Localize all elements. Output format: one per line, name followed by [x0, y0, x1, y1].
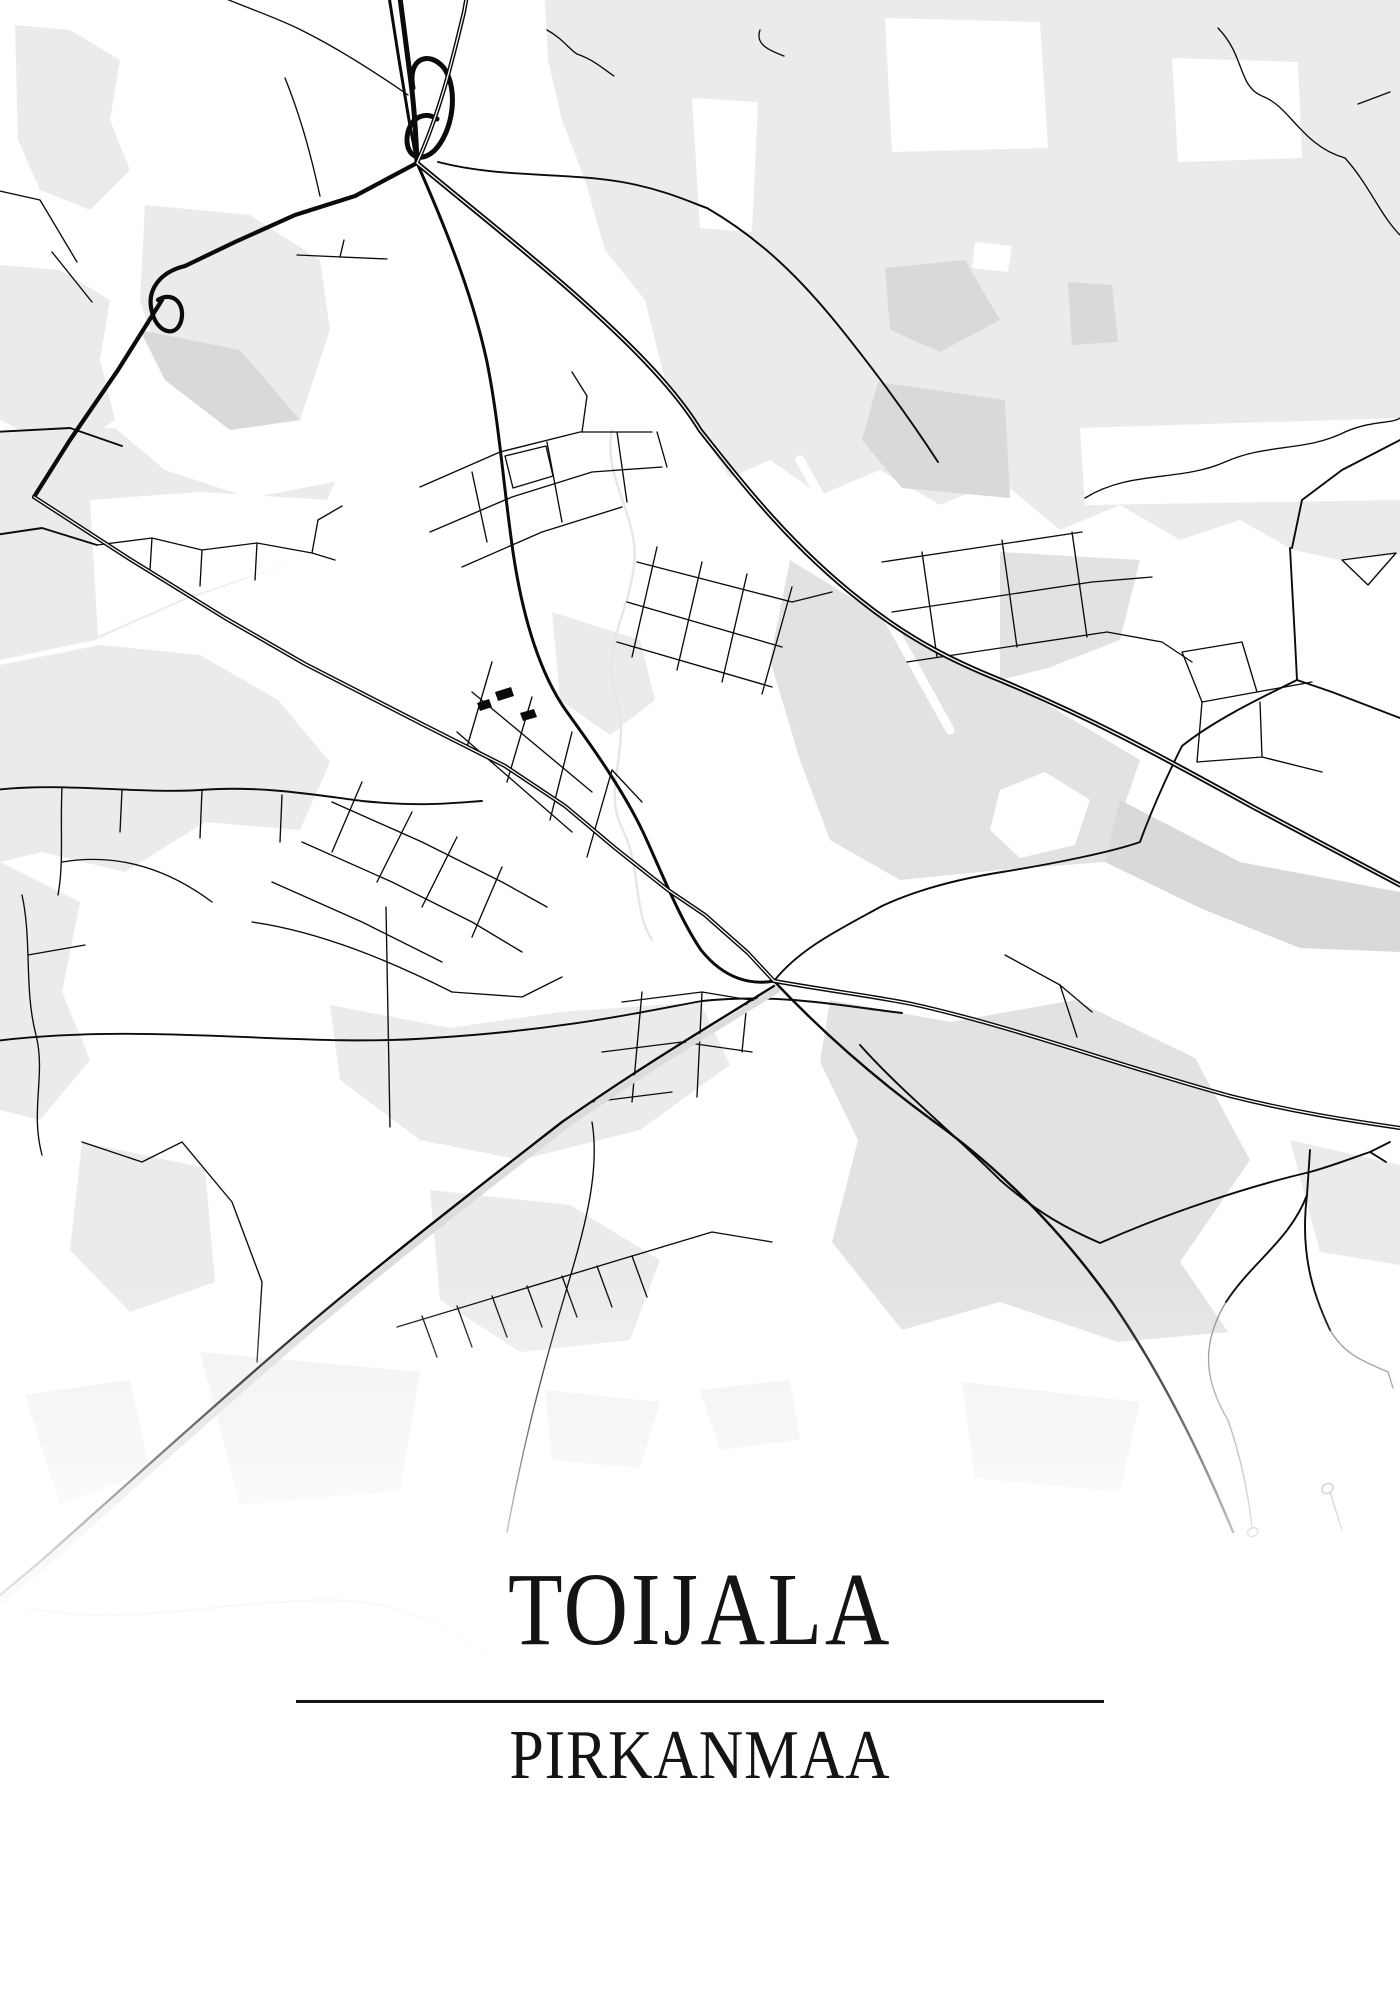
- map-poster: TOIJALA PIRKANMAA: [0, 0, 1400, 2000]
- building-footprints: [477, 687, 537, 721]
- city-title: TOIJALA: [98, 1556, 1302, 1664]
- title-divider-line: [296, 1700, 1104, 1703]
- landuse-layer-mid: [770, 552, 1250, 1342]
- title-block: TOIJALA PIRKANMAA: [0, 1556, 1400, 1793]
- region-subtitle: PIRKANMAA: [84, 1719, 1316, 1793]
